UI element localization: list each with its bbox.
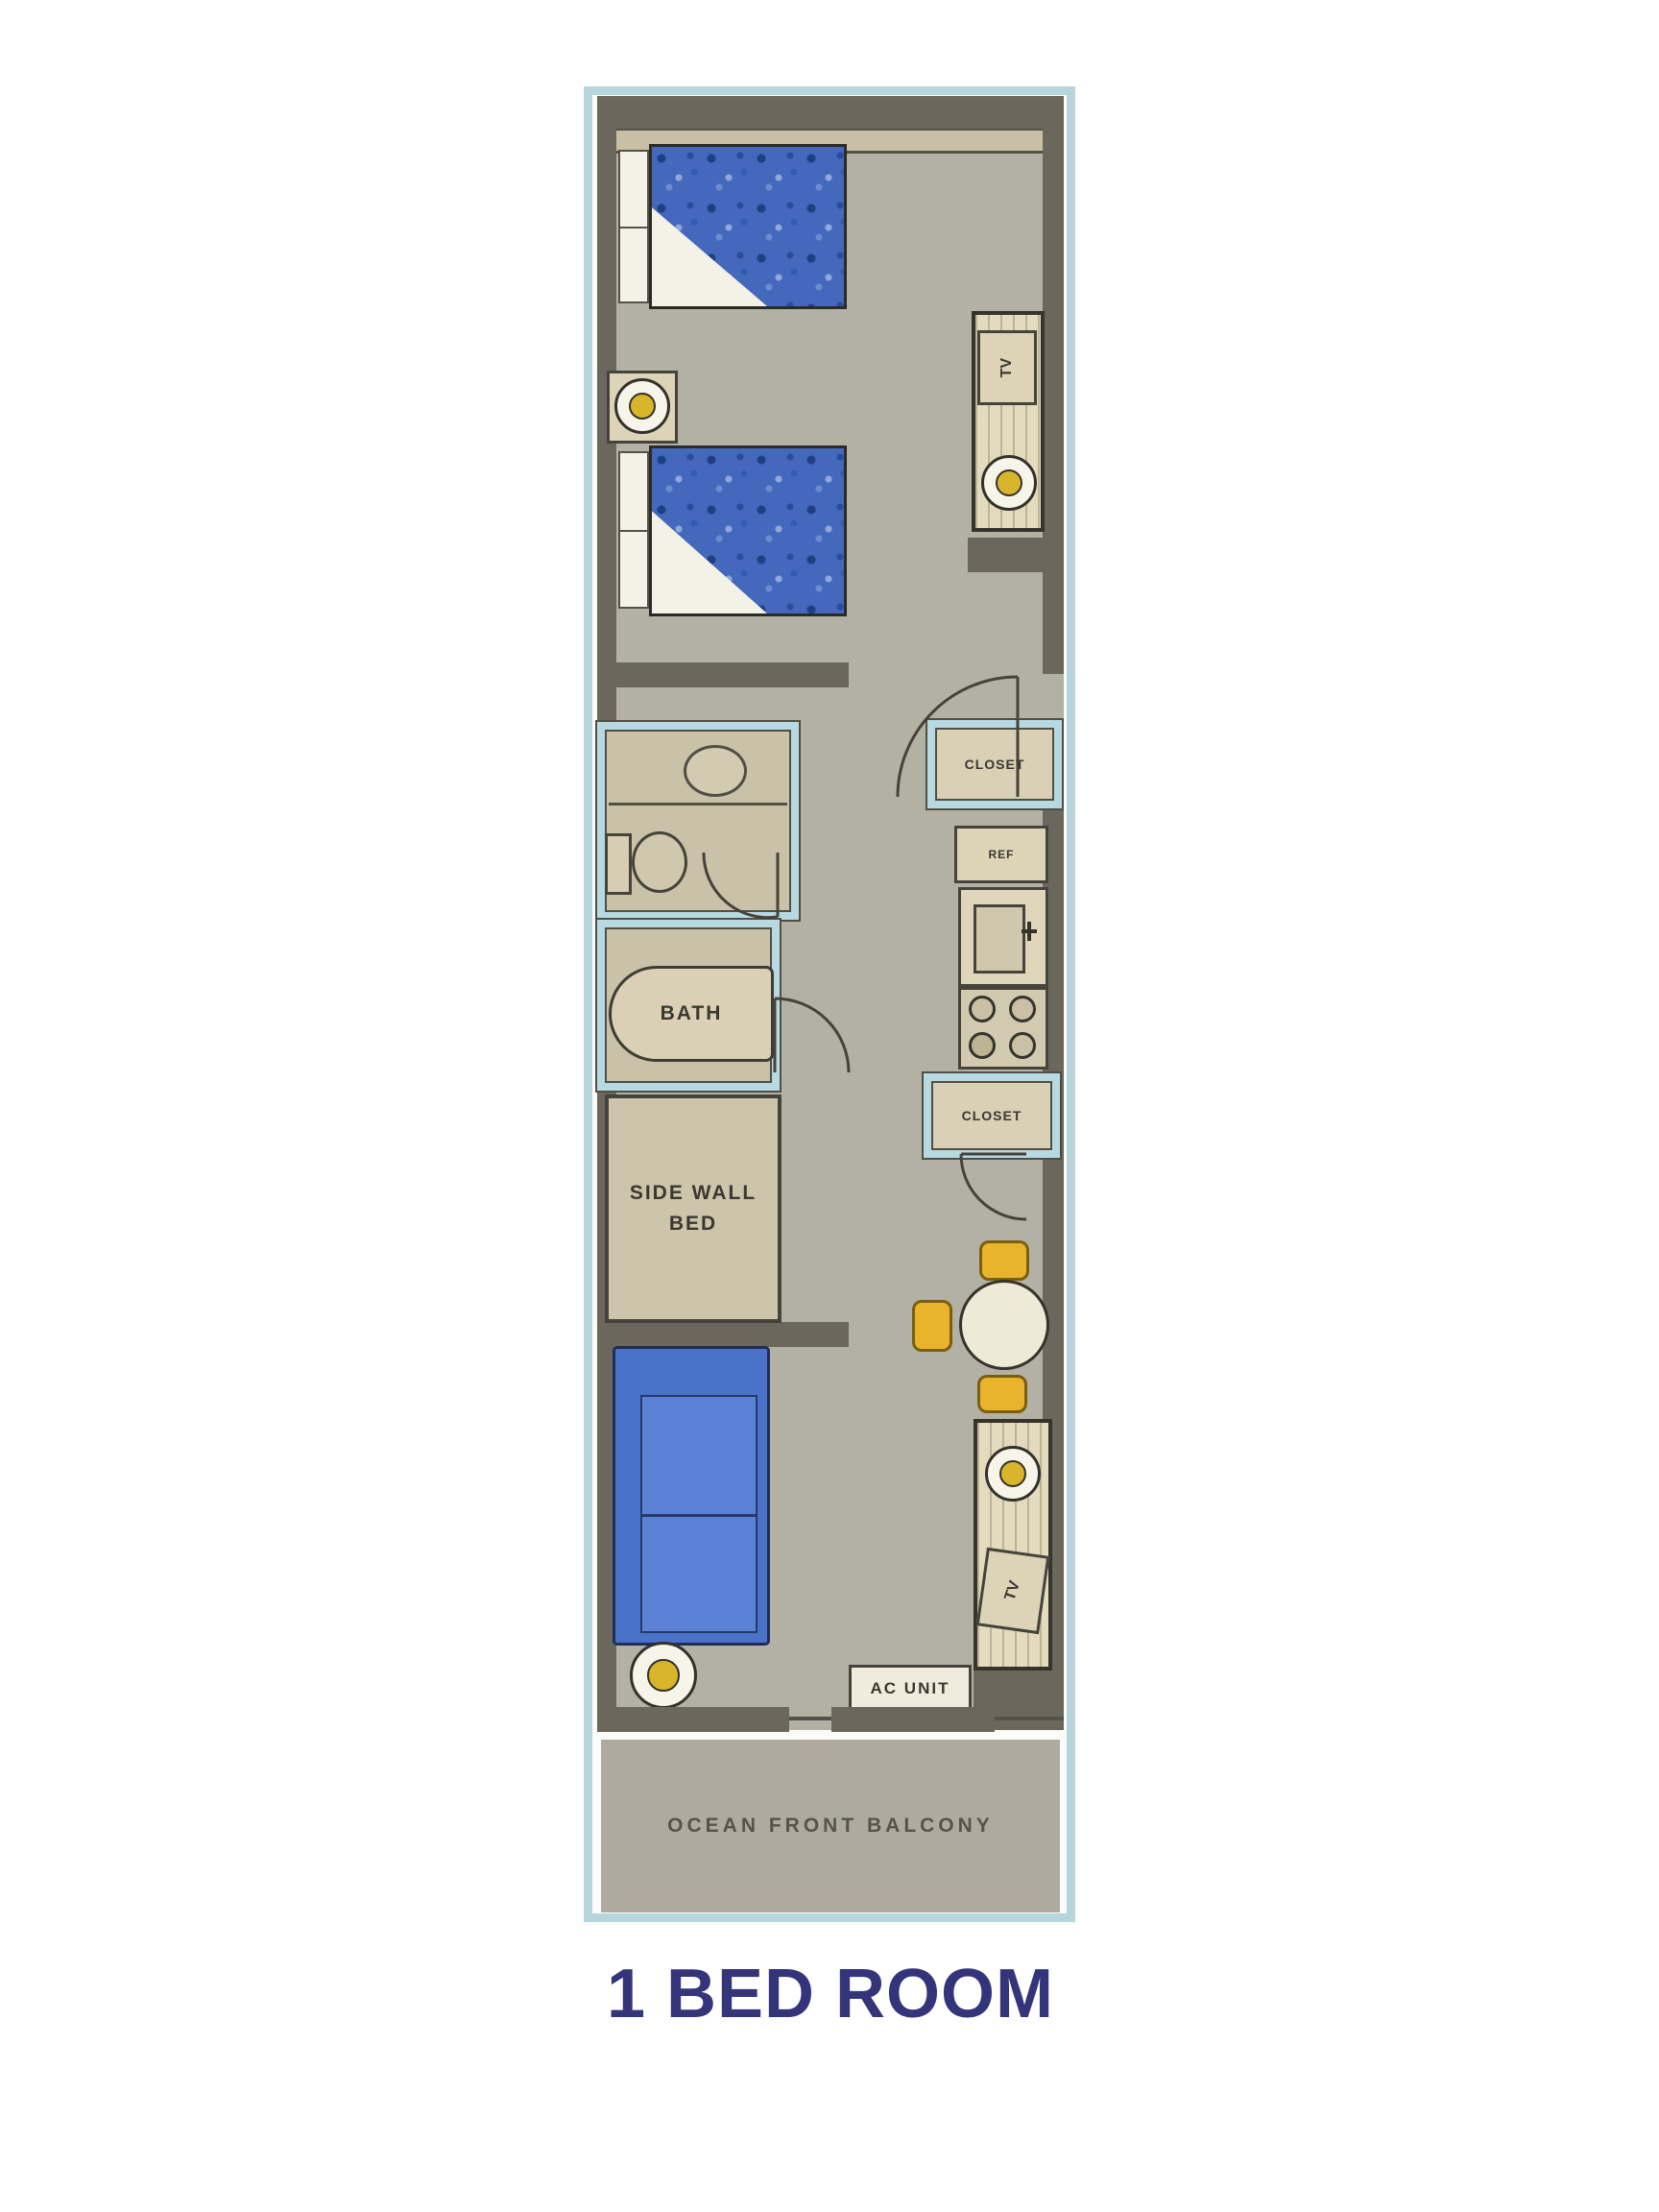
stove bbox=[958, 987, 1048, 1070]
bed-2-headboard bbox=[618, 451, 649, 609]
dining-table bbox=[959, 1280, 1049, 1370]
bathtub: BATH bbox=[609, 966, 774, 1062]
vanity-counter-edge bbox=[609, 803, 787, 805]
bed-1-blanket-fold bbox=[652, 207, 767, 306]
stove-burner bbox=[969, 996, 996, 1022]
kitchen-sink-basin bbox=[974, 904, 1025, 974]
bed-2 bbox=[649, 445, 847, 616]
ac-unit-label: AC UNIT bbox=[871, 1679, 950, 1698]
stove-burner bbox=[969, 1032, 996, 1059]
side-wall-bed-label-line2: BED bbox=[669, 1209, 717, 1239]
tv-cabinet-upper-lamp-icon bbox=[981, 455, 1037, 511]
floor-plan-page: TV BATH SIDE WALL BED CLOSET REF CLOSET bbox=[0, 0, 1659, 2212]
bed-1-headboard bbox=[618, 150, 649, 303]
toilet-bowl bbox=[632, 831, 687, 893]
tv-lower-box: TV bbox=[976, 1548, 1050, 1634]
sofa-cushions bbox=[640, 1395, 757, 1633]
balcony-label: OCEAN FRONT BALCONY bbox=[601, 1740, 1060, 1912]
kitchen-faucet-icon-2 bbox=[1027, 922, 1031, 941]
wall-bottom-right-segment bbox=[831, 1707, 995, 1732]
stove-burner bbox=[1009, 1032, 1036, 1059]
tv-upper-box: TV bbox=[977, 330, 1037, 405]
nightstand-lamp-icon bbox=[614, 378, 670, 434]
bed-1 bbox=[649, 144, 847, 309]
balcony: OCEAN FRONT BALCONY bbox=[601, 1740, 1060, 1912]
bed-2-blanket-fold bbox=[652, 511, 767, 613]
sofa-cushion-divider bbox=[642, 1514, 756, 1517]
page-title: 1 BED ROOM bbox=[499, 1955, 1162, 2032]
fridge-label: REF bbox=[989, 848, 1015, 861]
bathroom-sink bbox=[684, 745, 747, 797]
closet-lower-label: CLOSET bbox=[962, 1108, 1022, 1123]
toilet-tank bbox=[605, 833, 632, 895]
dining-chair-left bbox=[912, 1300, 952, 1352]
floor-lamp-icon bbox=[630, 1642, 697, 1709]
side-wall-bed-label-line1: SIDE WALL bbox=[630, 1178, 757, 1209]
closet-upper-label: CLOSET bbox=[965, 757, 1025, 772]
wall-stub-living bbox=[597, 1322, 849, 1347]
tv-lower-label: TV bbox=[1001, 1578, 1023, 1602]
tv-cabinet-lower-lamp-icon bbox=[985, 1446, 1041, 1502]
bath-label: BATH bbox=[661, 1002, 723, 1025]
ac-unit: AC UNIT bbox=[849, 1665, 972, 1713]
dining-chair-top bbox=[979, 1240, 1029, 1281]
stove-burner bbox=[1009, 996, 1036, 1022]
closet-upper: CLOSET bbox=[927, 720, 1062, 808]
wall-top bbox=[597, 96, 1064, 129]
tv-upper-label: TV bbox=[998, 358, 1016, 377]
refrigerator: REF bbox=[954, 826, 1048, 883]
side-wall-bed: SIDE WALL BED bbox=[605, 1094, 781, 1323]
wall-bottom-left-segment bbox=[597, 1707, 789, 1732]
wall-stub-entry bbox=[968, 538, 1064, 572]
wall-stub-bed-foot bbox=[597, 662, 849, 687]
closet-lower: CLOSET bbox=[924, 1073, 1060, 1158]
sofa bbox=[613, 1346, 770, 1646]
dining-chair-bottom bbox=[977, 1375, 1027, 1413]
